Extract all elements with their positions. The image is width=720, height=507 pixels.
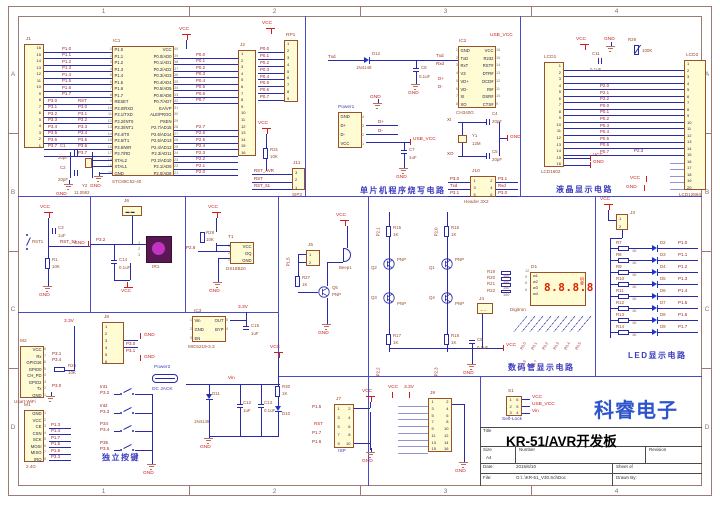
power-bar <box>507 135 508 141</box>
resistor-r31[interactable] <box>263 148 268 159</box>
key-button[interactable] <box>120 449 122 451</box>
resistor-ref: R20 <box>487 276 495 280</box>
resistor-ref: R9 <box>616 265 622 269</box>
c12-ref: C12 <box>243 401 251 405</box>
j2-header[interactable]: 12345678910111213141516 <box>238 50 256 156</box>
net-label: P1.1 <box>678 253 687 258</box>
rp1-resistor-pack[interactable]: 123456789 <box>284 40 298 102</box>
j11-sip3[interactable]: 321 <box>292 168 305 190</box>
key-net: Int1 <box>100 385 108 390</box>
pin-number: 6 <box>348 423 350 432</box>
j4-jumper[interactable]: – – <box>477 303 493 314</box>
segment-bus <box>513 316 594 332</box>
resistor-r15[interactable] <box>386 226 391 237</box>
net-label: P1.6 <box>62 86 71 90</box>
pin-number: 2 <box>104 55 112 59</box>
vcc-symbol <box>266 28 275 34</box>
capacitor-c3[interactable] <box>52 228 56 234</box>
j6-jumper[interactable]: ▬ ▬ <box>122 206 142 216</box>
r26-value: 10K <box>68 371 76 375</box>
pnp-transistor-icon[interactable] <box>441 292 453 304</box>
j7-isp-header[interactable]: 12345678910 <box>334 404 354 448</box>
net-label: P1.0 <box>678 241 687 246</box>
pin-name: P2.6/AD14 <box>151 133 171 137</box>
c15-ref: C15 <box>251 324 259 328</box>
p0-net-bus: P0.0P0.1P0.2P0.3P0.4P0.5P0.6P0.7 <box>174 52 238 104</box>
ic2-part: CH340G <box>456 111 474 116</box>
ic1-mcu[interactable]: 1P1.0VCC402P1.1P0.0/AD0393P1.2P0.1/AD138… <box>112 46 174 176</box>
net-label: P0.3 <box>260 68 269 72</box>
net-label: Rxd <box>498 184 506 188</box>
resistor-value: 100 <box>503 294 509 298</box>
pin-number: 3 <box>44 381 52 385</box>
gnd-label: GND <box>318 332 329 337</box>
j5-jumper[interactable]: 12 <box>306 250 320 266</box>
r27-value: 1K <box>302 283 307 287</box>
pin-number: 30 <box>174 113 182 117</box>
net-label: P0.0 <box>600 104 609 108</box>
company-logo-text: 科睿电子 <box>594 394 678 423</box>
led-icon[interactable] <box>652 329 657 335</box>
pin-number: 11 <box>239 117 255 124</box>
j9-bus <box>398 400 428 454</box>
net-label: P3.3 <box>48 118 57 122</box>
c4-value: 20pF <box>492 120 502 124</box>
resistor-r1[interactable] <box>45 258 50 269</box>
switch-lever <box>123 425 131 430</box>
pin-name: CSN <box>33 432 42 436</box>
capacitor[interactable] <box>74 150 78 156</box>
net-label: P2.1 <box>600 91 609 95</box>
seven-segment-digits: 8.8.8.8 <box>544 282 594 293</box>
pin-number: 13 <box>496 72 504 76</box>
y2-value: 11.0592 <box>74 191 90 195</box>
d10-ref: D10 <box>282 412 290 416</box>
section-title-programming: 单片机程序烧写电路 <box>360 185 446 196</box>
pin-number: 4 <box>450 72 458 76</box>
pin-name: P2.0/AD8 <box>154 172 172 176</box>
net-label: P1.6 <box>678 313 687 318</box>
pin-name: ALE/PROG <box>150 113 171 117</box>
pin-number: 8 <box>104 94 112 98</box>
pin-name: VCC <box>485 49 494 53</box>
pin-number: 11 <box>496 88 504 92</box>
led-icon[interactable] <box>652 293 657 299</box>
pin-number: 10 <box>444 426 448 433</box>
drawn-by-label: Drawn By: <box>616 476 637 481</box>
m2-wifi-module[interactable]: VCC8Rx7GPIO166GPIO05CH_PD4GPIO23Tx2GND1 <box>20 346 44 398</box>
ic1-ref: IC1 <box>113 40 120 45</box>
pin-name: VCC <box>341 142 350 146</box>
v33-label: 3.3V <box>64 320 74 325</box>
pin-number: 6 <box>104 81 112 85</box>
pin-number: 9 <box>496 103 504 107</box>
net-label: P3.3 <box>78 125 87 129</box>
key-net: P35 <box>100 441 108 446</box>
pin-number: 15 <box>104 139 112 143</box>
net-label: P3.1 <box>48 105 57 109</box>
pin-number: 12 <box>525 270 529 274</box>
pin-name: P2.1/AD9 <box>154 165 172 169</box>
pin-number: 16 <box>496 49 504 53</box>
pin-name: IRQ <box>34 458 41 462</box>
switch-lever <box>123 388 131 393</box>
capacitor[interactable] <box>74 170 78 176</box>
revision-label: Revision <box>649 448 666 453</box>
j8-header[interactable]: 123456 <box>102 322 124 364</box>
usb-vcc-label: USB_VCC <box>413 138 436 143</box>
resistor[interactable] <box>618 294 629 299</box>
pin-name: BYP <box>215 328 223 332</box>
pin-number: 12 <box>239 124 255 131</box>
pin-number: 9 <box>525 276 527 280</box>
vcc-label: VCC <box>336 214 346 219</box>
vin-label: Vin <box>228 377 235 382</box>
pnp-transistor-icon[interactable] <box>383 292 395 304</box>
zone-label: 1 <box>18 6 189 16</box>
led-icon[interactable] <box>652 305 657 311</box>
pin-number: 15 <box>432 446 436 453</box>
key-button[interactable] <box>120 393 122 395</box>
pin-number: 4 <box>490 184 492 191</box>
capacitor-c15[interactable] <box>243 326 249 330</box>
crystal-y1[interactable] <box>458 135 467 143</box>
pin-name: P3.4/T0 <box>115 133 130 137</box>
net-label: P0.5 <box>196 85 205 89</box>
pin-number: 4 <box>239 71 255 78</box>
pin-number: 1 <box>474 177 476 184</box>
p23-net: P2.3 <box>435 367 439 376</box>
pin-number: 6 <box>285 75 297 82</box>
key-pin: P3.3 <box>100 410 109 415</box>
j11-part: SIP3 <box>292 193 302 198</box>
power-bar <box>646 176 647 182</box>
pin-number: 8 <box>239 97 255 104</box>
j1-header[interactable]: 16151413121110987654321 <box>24 44 44 148</box>
j10-ref: J10 <box>472 170 480 175</box>
lcd2-connector[interactable]: 1234567891011121314151617181920 <box>684 60 706 190</box>
date-label: Date: <box>483 465 494 470</box>
net-label: P0.2 <box>600 117 609 121</box>
pin-number: 16 <box>239 150 255 157</box>
pin-number: 12 <box>444 433 448 440</box>
pin-name: P1.7 <box>115 94 124 98</box>
ds18b20-sensor[interactable]: 3VCC2DQ1GND <box>230 242 254 264</box>
net-label: P3.2 <box>78 118 87 122</box>
c5-value: 20pF <box>492 158 502 162</box>
net-label: P0.1 <box>532 342 539 351</box>
net-label: P0.4 <box>565 342 572 351</box>
pin-name: P2.2/AD10 <box>151 159 171 163</box>
pin-number: 5 <box>104 74 112 78</box>
pin-name: P2.3/AD11 <box>152 152 172 156</box>
pin-name: XTAL2 <box>115 159 128 163</box>
lcd2-ref: LCD2 <box>686 54 698 59</box>
pin-number: 9 <box>239 104 255 111</box>
isp-net: P1.6 <box>312 440 321 445</box>
j2-ref: J2 <box>240 44 245 49</box>
j3-jumper[interactable]: 12 <box>616 214 628 230</box>
pin-name: P1.4 <box>115 74 124 78</box>
m1-ref: M1 <box>24 404 31 409</box>
key-button[interactable] <box>120 430 122 432</box>
pin-number: 4 <box>285 62 297 69</box>
resistor[interactable] <box>618 330 629 335</box>
net-label: RST <box>78 99 87 103</box>
ic3-ref: IC3 <box>194 310 201 315</box>
net-label: P0.6 <box>600 143 609 147</box>
pin-number: 13 <box>432 440 436 447</box>
txd-net: Txd <box>328 55 336 60</box>
c8-ref: C8 <box>421 66 427 70</box>
net-label: P1.2 <box>678 265 687 270</box>
net-label: RST_51 <box>254 184 270 188</box>
power-bar <box>503 345 504 351</box>
net-label: P1.4 <box>51 429 60 433</box>
m1-part: 2.4G <box>26 465 36 470</box>
pin-number: 9 <box>338 440 340 449</box>
pin-number: 1 <box>44 412 52 416</box>
pin-name: D+ <box>341 124 346 128</box>
led-d10[interactable] <box>275 406 281 411</box>
ground-symbol <box>411 84 420 90</box>
pin-name: XI <box>461 95 465 99</box>
r18-ref: R18 <box>451 334 459 338</box>
isp-net: RST <box>314 422 323 427</box>
pin-name: RESET <box>115 100 129 104</box>
key-pin: P3.5 <box>100 447 109 452</box>
net-label: P2.0 <box>196 170 205 174</box>
resistor-r26[interactable] <box>54 367 65 372</box>
pin-name: GND <box>242 259 251 263</box>
pin-name: XO <box>461 103 467 107</box>
pin-number: 2 <box>450 57 458 61</box>
vcc-label: VCC <box>262 22 272 27</box>
dplus-net: D+ <box>438 77 444 82</box>
pin-number: 14 <box>496 64 504 68</box>
r29-ref: R29 <box>628 38 636 42</box>
net-label: P0.4 <box>260 75 269 79</box>
pin-number: 9 <box>104 100 112 104</box>
pin-name: EN <box>195 337 201 341</box>
pin-name: P0.0/AD0 <box>154 55 172 59</box>
r30-ref: R30 <box>282 385 290 389</box>
capacitor-c5[interactable] <box>486 153 490 159</box>
divider <box>595 196 596 376</box>
pin-number: 3 <box>510 410 512 417</box>
d12-value: 1N4148 <box>356 66 371 70</box>
net-label: P2.5 <box>196 138 205 142</box>
resistor[interactable] <box>618 258 629 263</box>
r28-ref: R28 <box>206 231 214 235</box>
net-label: P3.4 <box>78 131 87 135</box>
led-icon[interactable] <box>652 257 657 263</box>
pin-number: 2 <box>44 387 52 391</box>
ground-symbol <box>366 452 375 458</box>
c9-value: 0.1uF <box>477 346 488 350</box>
power1-usb-connector[interactable]: GND4D+3D-2VCC1 <box>338 112 362 148</box>
net-label: P0.3 <box>554 342 561 351</box>
dplus-net: D+ <box>378 120 384 125</box>
pin-number: 6 <box>450 88 458 92</box>
resistor[interactable] <box>618 282 629 287</box>
pnp-transistor-icon[interactable] <box>318 286 330 298</box>
gnd-label: GND <box>455 470 466 475</box>
net-label: P1.3 <box>678 277 687 282</box>
j9-header[interactable]: 12345678910111213141516 <box>428 398 452 452</box>
section-title-lcd: 液晶显示电路 <box>556 184 613 195</box>
net-label: P3.0 <box>498 191 507 195</box>
ic2-ch340g[interactable]: 1GNDVCC162TxDR232153RxTRST#144V3DTR#135V… <box>458 46 496 108</box>
net-label: P0.4 <box>196 79 205 83</box>
pin-number: 8 <box>446 419 448 426</box>
resistor-r18[interactable] <box>444 334 449 345</box>
capacitor-c4[interactable] <box>486 119 490 125</box>
v33-label: 3.3V <box>238 306 248 311</box>
c1-value: 20pF <box>58 156 68 160</box>
resistor-r16[interactable] <box>444 226 449 237</box>
net-label: P3.0 <box>48 99 57 103</box>
gnd-label: GND <box>209 290 220 295</box>
resistor[interactable] <box>618 270 629 275</box>
net-label: P1.5 <box>62 79 71 83</box>
pin-name: SCK <box>33 438 42 442</box>
c7-value: 1uF <box>409 156 417 160</box>
rst1-ref: RST1 <box>32 240 43 244</box>
m1-nrf-module[interactable]: GND1VCC2CE3CSN4SCK5MOSI6MISO7IRQ8 <box>24 410 44 462</box>
ground-symbol <box>459 462 468 468</box>
number-label: Number <box>519 448 535 453</box>
lcd1-ref: LCD1 <box>544 56 556 61</box>
pin-name: P1.1 <box>115 55 124 59</box>
vcc-label: VCC <box>388 386 398 391</box>
net-label: RST_AVR <box>254 169 274 173</box>
c8-value: 0.1uF <box>419 75 430 79</box>
ground-symbol <box>46 396 55 402</box>
r16-value: 1K <box>451 233 456 237</box>
ic3-regulator[interactable]: 1VinOUT52GNDBYP43EN <box>192 316 226 342</box>
net-label: P0.5 <box>260 81 269 85</box>
pin-number: 5 <box>432 413 434 420</box>
net-label: P3.1 <box>450 191 459 195</box>
pin-number: 6 <box>525 289 527 293</box>
pin-name: GPIO0 <box>29 368 42 372</box>
net-label: P3.0 <box>450 177 459 181</box>
file-label: File: <box>483 476 492 481</box>
pin-number: 1 <box>222 259 230 263</box>
led-icon[interactable] <box>652 269 657 275</box>
pin-name: P0.4/AD4 <box>154 81 172 85</box>
net-label: P3.1 <box>78 112 87 116</box>
vcc-symbol <box>580 44 589 50</box>
pin-number: 3 <box>474 184 476 191</box>
resistor-r17[interactable] <box>386 334 391 345</box>
pin-name: GND <box>195 328 204 332</box>
p20-net: P2.0 <box>435 227 439 236</box>
net-label: P3.5 <box>78 138 87 142</box>
pin-name: P3.7/RD <box>115 152 131 156</box>
net-label: P0.1 <box>260 54 269 58</box>
pin-name: RI# <box>487 88 494 92</box>
q5-type: PNP <box>332 293 341 297</box>
r28-value: 10K <box>206 238 214 242</box>
pnp-transistor-icon[interactable] <box>383 258 395 270</box>
c2-value: 20pF <box>58 178 68 182</box>
pin-number: 13 <box>104 126 112 130</box>
key-button[interactable] <box>120 412 122 414</box>
pin-number: 6 <box>239 84 255 91</box>
key-pin: P3.4 <box>100 428 109 433</box>
pin-number: 5 <box>338 423 340 432</box>
pin-number: 13 <box>239 130 255 137</box>
led-icon[interactable] <box>652 317 657 323</box>
pin-number: 4 <box>104 68 112 72</box>
r17-value: 1K <box>393 341 398 345</box>
power2-ref: Power2 <box>154 366 170 371</box>
power-bar <box>140 355 141 361</box>
digitron-display[interactable]: w1w2w3w4 8.8.8.8 科睿 <box>530 272 586 306</box>
power-bar <box>590 155 591 161</box>
r16-ref: R16 <box>451 226 459 230</box>
resistor-r28[interactable] <box>200 232 205 243</box>
pin-name: XTAL1 <box>115 165 128 169</box>
pin-number: 10 <box>104 107 112 111</box>
j10-header-3x2[interactable]: 123456 <box>470 176 496 197</box>
net-label: P0.6 <box>196 92 205 96</box>
c9-ref: C9 <box>477 338 483 342</box>
pin-number: 5 <box>285 69 297 76</box>
power-bar <box>140 333 141 339</box>
pin-number: 4 <box>103 344 123 351</box>
s1-net: VCC <box>532 396 542 401</box>
zone-label: 3 <box>360 6 531 16</box>
resistor[interactable] <box>618 318 629 323</box>
net-label: P3.1 <box>498 177 507 181</box>
led-icon[interactable] <box>652 245 657 251</box>
q2-ref: Q2 <box>371 266 377 270</box>
lcd2-stub-wires <box>670 157 684 191</box>
resistor-r27[interactable] <box>295 276 300 287</box>
v33-label: 3.3V <box>404 386 414 391</box>
led-icon[interactable] <box>652 281 657 287</box>
pin-number: 2 <box>510 404 512 411</box>
pin-name: GND <box>461 49 470 53</box>
q1-type: PNP <box>455 258 464 262</box>
crystal[interactable] <box>85 158 92 168</box>
net-label: P3.6 <box>48 138 57 142</box>
pin-number: 10 <box>496 95 504 99</box>
diode-d12[interactable] <box>364 57 369 63</box>
pin-name: GPIO2 <box>29 381 42 385</box>
resistor[interactable] <box>618 246 629 251</box>
q5-ref: Q5 <box>332 286 338 290</box>
pin-name: GPIO16 <box>26 361 41 365</box>
pin-number: 2 <box>184 328 192 332</box>
resistor-ref: R11 <box>616 289 624 293</box>
pnp-transistor-icon[interactable] <box>441 258 453 270</box>
zone-numbers-bottom: 1234 <box>18 486 702 496</box>
resistor[interactable] <box>618 306 629 311</box>
lcd1-connector[interactable]: 12345678910111213141516 <box>544 62 564 167</box>
y1-ref: Y1 <box>472 134 477 138</box>
net-label: P0.1 <box>600 110 609 114</box>
resistor-r30[interactable] <box>275 386 280 397</box>
pin-number: 5 <box>239 77 255 84</box>
resistor-ref: R8 <box>616 253 622 257</box>
s1-self-lock-switch[interactable]: 162534 <box>506 396 522 416</box>
ground-symbol <box>94 176 103 182</box>
pin-number: 1 <box>293 184 304 191</box>
